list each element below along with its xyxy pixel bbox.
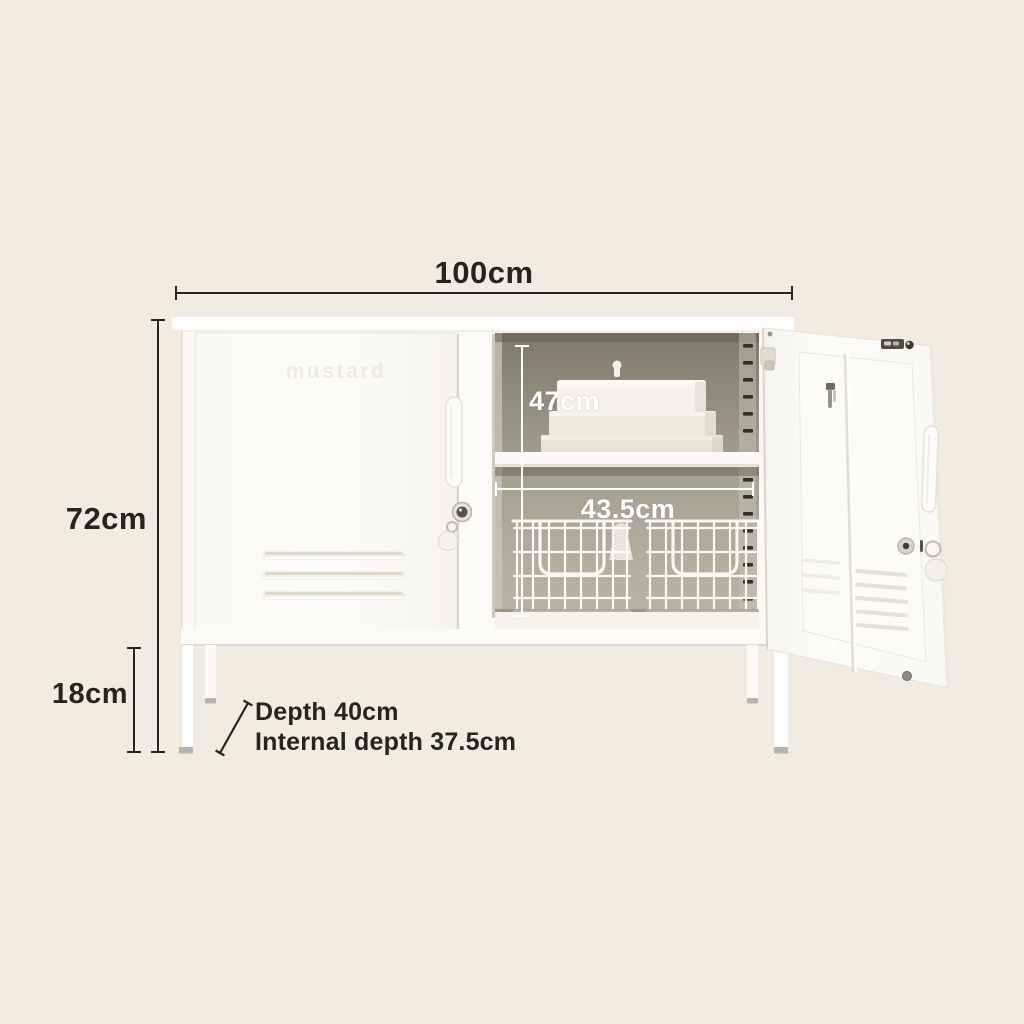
depth-line-1: Depth 40cm — [255, 697, 516, 727]
interior-floor — [495, 612, 759, 631]
cabinet-leg-front-right — [774, 645, 788, 754]
cabinet-top-panel — [171, 316, 795, 331]
open-door-key-tag-icon — [925, 559, 947, 581]
internal-width-dimension-label: 43.5cm — [541, 494, 715, 525]
center-stile — [459, 333, 494, 631]
internal-height-dimension-label: 47cm — [529, 386, 600, 417]
door-screw-icon — [903, 672, 912, 681]
width-dimension-line — [175, 292, 793, 294]
open-door-handle — [922, 426, 939, 512]
interior-compartment — [495, 333, 760, 631]
left-door-handle — [446, 397, 462, 487]
leg-height-dimension-line — [133, 647, 135, 753]
depth-annotation: Depth 40cm Internal depth 37.5cm — [255, 697, 516, 757]
internal-width-dimension-line — [495, 488, 754, 490]
shelf — [495, 452, 759, 476]
depth-leader-line — [206, 695, 258, 761]
brand-emboss-text: mustard — [286, 360, 386, 383]
cabinet-leg-front-left — [179, 645, 193, 754]
product-dimension-diagram: mustard — [0, 0, 1024, 1024]
key-tag-icon — [439, 532, 458, 551]
depth-line-2: Internal depth 37.5cm — [255, 727, 516, 757]
door-latch-icon — [881, 339, 914, 349]
locker-cabinet-illustration: mustard — [0, 0, 1024, 1024]
width-dimension-label: 100cm — [175, 255, 793, 291]
cabinet-base — [181, 629, 790, 646]
cabinet-left-frame — [181, 331, 195, 631]
height-dimension-line — [157, 319, 159, 753]
leg-height-dimension-label: 18cm — [34, 678, 128, 711]
internal-height-dimension-line — [521, 345, 523, 617]
cabinet-leg-rear-right — [747, 645, 758, 704]
open-door — [761, 328, 948, 688]
height-dimension-label: 72cm — [53, 501, 147, 537]
vent-slots — [262, 551, 406, 600]
